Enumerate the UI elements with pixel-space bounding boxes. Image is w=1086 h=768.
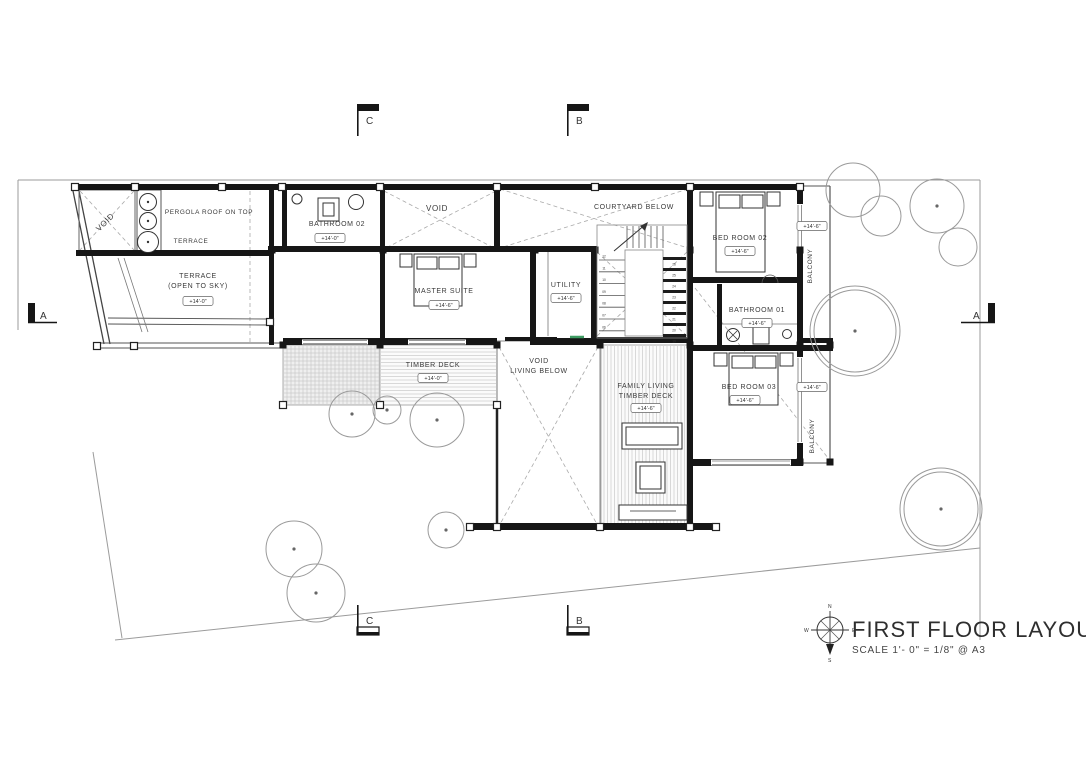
column-outlined	[687, 524, 694, 531]
room-label-text: TERRACE	[179, 273, 217, 280]
wall-segment	[687, 184, 693, 530]
title-block: N E S W FIRST FLOOR LAYOUT SCALE 1'- 0" …	[804, 604, 1086, 664]
level-tag-text: +14'-6"	[736, 398, 753, 404]
column-outlined	[494, 524, 501, 531]
thin-wall-line	[124, 258, 148, 332]
tree-trunk-dot	[350, 412, 353, 415]
room-label-text: (OPEN TO SKY)	[168, 283, 228, 290]
tree-trunk-dot	[435, 418, 438, 421]
wall-segment	[591, 246, 597, 342]
stair-tread-right	[663, 257, 686, 260]
stair-landing	[625, 250, 663, 336]
thin-wall-line	[118, 258, 142, 332]
room-label-bathroom-02: BATHROOM 02+14'-0"	[309, 221, 365, 243]
column-filled	[687, 342, 694, 349]
section-letter: C	[366, 116, 373, 127]
furniture-item	[714, 353, 727, 366]
tree-trunk-dot	[853, 329, 856, 332]
paved-deck-area	[283, 345, 380, 405]
furniture-item	[719, 195, 740, 208]
tree-trunk-dot	[935, 204, 938, 207]
room-label-courtyard-below: COURTYARD BELOW	[594, 204, 674, 211]
column-filled	[280, 342, 287, 349]
section-flag	[357, 104, 379, 111]
stair-arrow-head	[640, 222, 648, 231]
stair-number: 12	[602, 255, 606, 259]
column-filled	[269, 247, 276, 254]
section-letter: B	[576, 116, 583, 127]
tree-canopy	[826, 163, 880, 217]
wall-segment	[530, 246, 536, 340]
drawing-scale-note: SCALE 1'- 0" = 1/8" @ A3	[852, 645, 986, 656]
stair-tread-right	[663, 279, 686, 282]
room-label-terrace-open-to-sky: TERRACE(OPEN TO SKY)+14'-0"	[168, 273, 228, 306]
column-outlined	[377, 402, 384, 409]
column-outlined	[797, 184, 804, 191]
furniture-item	[626, 427, 678, 445]
furniture-item	[640, 466, 661, 489]
tree-canopy	[939, 228, 977, 266]
section-letter: C	[366, 616, 373, 627]
room-label-text: COURTYARD BELOW	[594, 204, 674, 211]
thin-wall-line	[108, 324, 270, 325]
room-label-text: FAMILY LIVING	[618, 383, 675, 390]
column-filled	[377, 342, 384, 349]
washbasin	[349, 195, 364, 210]
wall-segment	[690, 277, 803, 283]
furniture-item	[753, 327, 769, 344]
section-flag	[28, 303, 35, 323]
section-flag-fill	[567, 632, 589, 636]
furniture-item	[417, 257, 437, 269]
column-outlined	[467, 524, 474, 531]
level-tag-text: +14'-6"	[803, 224, 820, 230]
level-tag-text: +14'-6"	[435, 303, 452, 309]
stair-number: 06	[602, 325, 606, 329]
floor-plan-sheet: 1314151617181211100908070626252423222120…	[0, 0, 1086, 768]
level-tag-text: +14'-6"	[803, 385, 820, 391]
column-filled	[380, 247, 387, 254]
compass-n: N	[828, 604, 832, 610]
section-letter: A	[40, 311, 47, 322]
column-outlined	[280, 402, 287, 409]
floor-plan-drawing: 1314151617181211100908070626252423222120…	[0, 0, 1086, 768]
tree-trunk-dot	[444, 528, 447, 531]
level-tag-text: +14'-0"	[424, 376, 441, 382]
furniture-item	[700, 192, 713, 206]
thin-wall-line	[108, 318, 270, 319]
column-outlined	[279, 184, 286, 191]
stair-number: 10	[602, 278, 606, 282]
section-marker-left-a: A	[28, 303, 57, 323]
column-outlined	[219, 184, 226, 191]
room-label-text: TERRACE	[174, 238, 209, 245]
column-outlined	[687, 184, 694, 191]
stair-tread-right	[663, 312, 686, 315]
stair-number: 26	[672, 263, 676, 267]
washbasin	[783, 330, 792, 339]
section-marker-bottom-c: C	[357, 605, 379, 636]
furniture-item	[742, 195, 763, 208]
compass-w: W	[804, 628, 809, 634]
level-tag-text: +14'-6"	[748, 321, 765, 327]
site-boundary-line	[93, 452, 122, 638]
room-label-pergola-roof-on-top: PERGOLA ROOF ON TOP	[165, 209, 253, 216]
door-pivot	[292, 194, 302, 204]
stair-tread-right	[663, 323, 686, 326]
column-outlined	[72, 184, 79, 191]
tree-trunk-dot	[292, 547, 295, 550]
compass-s: S	[828, 658, 832, 664]
column-outlined	[94, 343, 101, 350]
column-outlined	[494, 402, 501, 409]
furniture-item	[732, 356, 753, 368]
column-filled	[494, 342, 501, 349]
column-filled	[592, 247, 599, 254]
room-label-text: PERGOLA ROOF ON TOP	[165, 209, 253, 216]
furniture-item	[323, 203, 334, 216]
wall-segment	[282, 184, 287, 250]
stair-tread-right	[663, 301, 686, 304]
level-tag-text: +14'-6"	[637, 406, 654, 412]
tree-trunk-dot	[385, 408, 388, 411]
column-filled	[597, 342, 604, 349]
wall-segment	[688, 345, 833, 351]
section-letter: B	[576, 616, 583, 627]
tree-trunk-dot	[939, 507, 942, 510]
wall-segment	[505, 337, 557, 341]
furniture-item	[439, 257, 459, 269]
room-label-void-center: VOID	[426, 204, 448, 213]
wall-segment	[494, 184, 500, 250]
compass-needle	[826, 644, 834, 655]
room-label-utility: UTILITY+14'-6"	[551, 282, 581, 303]
wall-segment	[717, 284, 722, 345]
stair-number: 22	[672, 307, 676, 311]
furniture-item	[767, 192, 780, 206]
room-label-text: TIMBER DECK	[406, 362, 460, 369]
stair-number: 09	[602, 290, 606, 294]
column-filled	[797, 342, 804, 349]
room-label-text: VOID	[529, 358, 549, 365]
section-marker-bottom-b: B	[567, 605, 589, 636]
room-label-text: BALCONY	[807, 248, 814, 283]
level-tag-text: +14'-0"	[321, 236, 338, 242]
room-label-bathroom-01: BATHROOM 01+14'-6"	[729, 307, 785, 328]
drawing-title: FIRST FLOOR LAYOUT	[852, 617, 1086, 642]
stair-number: 21	[672, 318, 676, 322]
tree-canopy	[861, 196, 901, 236]
column-filled	[797, 247, 804, 254]
room-label-text: BED ROOM 02	[713, 235, 767, 242]
section-marker-right-a: A	[961, 303, 995, 323]
column-outlined	[592, 184, 599, 191]
section-marker-top-b: B	[567, 104, 589, 136]
furniture-item	[464, 254, 476, 267]
column-outlined	[597, 524, 604, 531]
furniture-item	[400, 254, 412, 267]
stair-number: 23	[672, 296, 676, 300]
thin-wall-line	[72, 186, 104, 344]
stair-number: 24	[672, 285, 676, 289]
section-flag-fill	[357, 632, 379, 636]
room-label-text: VOID	[426, 204, 448, 213]
room-label-text: BATHROOM 02	[309, 221, 365, 228]
wall-segment	[268, 246, 597, 252]
column-filled	[827, 342, 834, 349]
planter-dot	[147, 201, 149, 203]
level-tag-text: +14'-0"	[189, 299, 206, 305]
planter-dot	[147, 220, 149, 222]
stair-up-arrow	[614, 224, 646, 251]
site-boundary-line	[115, 548, 980, 640]
column-filled	[532, 247, 539, 254]
stair-number: 08	[602, 302, 606, 306]
section-marker-top-c: C	[357, 104, 379, 136]
level-tag-text: +14'-6"	[557, 296, 574, 302]
furniture-item	[755, 356, 776, 368]
level-tag-text: +14'-6"	[731, 249, 748, 255]
section-letter: A	[973, 311, 980, 322]
column-outlined	[132, 184, 139, 191]
stair-number: 25	[672, 274, 676, 278]
room-label-terrace-strip: TERRACE	[174, 238, 209, 245]
column-outlined	[377, 184, 384, 191]
column-filled	[687, 247, 694, 254]
room-label-text: VOID	[94, 211, 116, 233]
furniture-item	[619, 505, 687, 520]
tree-trunk-dot	[314, 591, 317, 594]
section-flag	[567, 104, 589, 111]
staircase: 1314151617181211100908070626252423222120…	[597, 222, 687, 344]
stair-number: 19	[672, 340, 676, 344]
column-filled	[827, 459, 834, 466]
room-label-text: BATHROOM 01	[729, 307, 785, 314]
stair-number: 20	[672, 329, 676, 333]
room-label-text: UTILITY	[551, 282, 581, 289]
north-compass-icon: N E S W	[804, 604, 856, 664]
room-label-text: LIVING BELOW	[510, 368, 567, 375]
room-label-text: BALCONY	[809, 418, 816, 453]
stair-number: 07	[602, 314, 606, 318]
column-outlined	[494, 184, 501, 191]
section-flag	[988, 303, 995, 323]
room-label-text: MASTER SUITE	[415, 288, 474, 295]
thin-wall-line	[78, 186, 110, 344]
column-outlined	[713, 524, 720, 531]
room-label-text: TIMBER DECK	[619, 393, 673, 400]
column-outlined	[131, 343, 138, 350]
room-label-text: BED ROOM 03	[722, 384, 776, 391]
room-label-void-living-below: VOIDLIVING BELOW	[510, 358, 567, 375]
column-filled	[797, 459, 804, 466]
wall-segment	[466, 523, 718, 530]
stair-tread-right	[663, 268, 686, 271]
wall-segment	[380, 184, 385, 340]
planter-dot	[147, 241, 149, 243]
stair-tread-right	[663, 290, 686, 293]
furniture-item	[780, 353, 793, 366]
wall-segment	[76, 250, 272, 256]
stair-number: 11	[602, 266, 606, 270]
stair-tread-right	[663, 334, 686, 337]
room-label-void-upper-left: VOID	[94, 211, 116, 233]
wall-opening	[797, 357, 804, 443]
column-outlined	[267, 319, 274, 326]
